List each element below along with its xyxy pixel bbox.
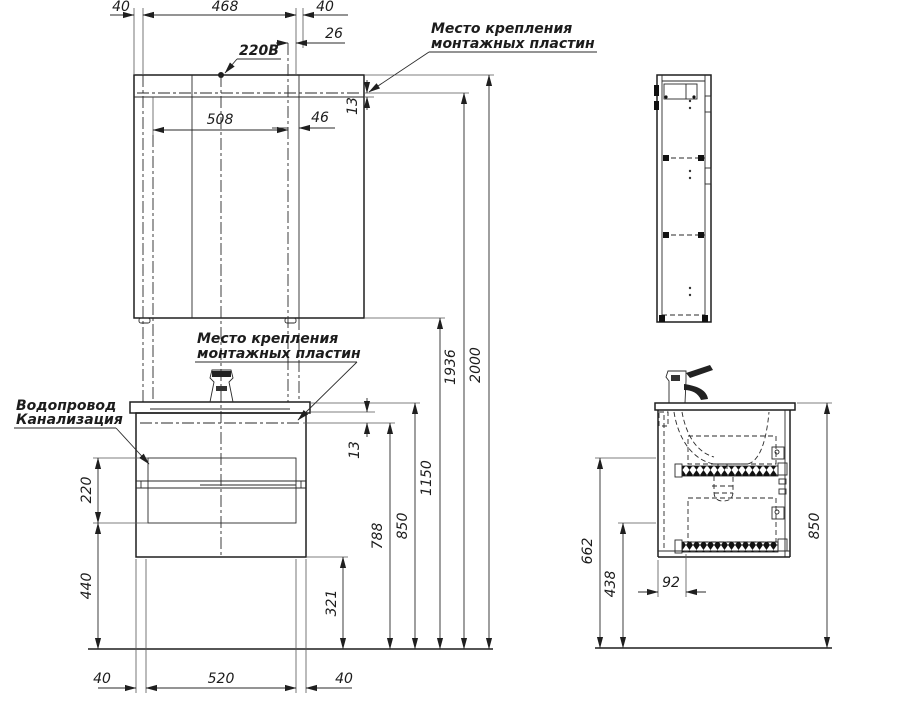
dim-850: 850 xyxy=(395,513,411,540)
mounting-mid-label-line1: Место крепления xyxy=(197,331,338,347)
callout-plumbing: Водопровод Канализация xyxy=(14,398,149,464)
dim-hatch-220: 220 xyxy=(79,477,95,504)
hinge-top xyxy=(654,85,659,96)
dim-788: 788 xyxy=(370,523,386,550)
dim-1150: 1150 xyxy=(419,460,435,496)
mirror-cabinet-front xyxy=(134,72,364,323)
dims-side: 662 438 850 92 xyxy=(580,403,832,648)
mounting-mid-label-line2: монтажных пластин xyxy=(197,346,361,362)
dim-mirror-plate-13: 13 xyxy=(345,97,361,115)
technical-drawing-page: 40 468 40 26 508 46 13 220 440 40 xyxy=(0,0,900,703)
dim-plate-side-46: 46 xyxy=(311,110,329,126)
dim-2000: 2000 xyxy=(468,347,484,383)
drawer-slide-upper xyxy=(682,466,778,476)
dim-1936: 1936 xyxy=(443,349,459,385)
dim-side-92: 92 xyxy=(662,575,680,591)
callout-mounting-top: Место крепления монтажных пластин xyxy=(369,21,597,92)
dim-top-left-40: 40 xyxy=(112,0,130,15)
voltage-label: 220В xyxy=(239,43,279,59)
dim-top-right-40: 40 xyxy=(316,0,334,15)
faucet-side xyxy=(666,365,713,403)
dims-top: 40 468 40 26 508 46 13 xyxy=(110,0,374,130)
mounting-top-label-line2: монтажных пластин xyxy=(431,36,595,52)
dim-side-438: 438 xyxy=(603,571,619,598)
dim-hatch-bottom-440: 440 xyxy=(79,573,95,600)
hinge-detail xyxy=(654,101,659,110)
installation-drawing: 40 468 40 26 508 46 13 220 440 40 xyxy=(0,0,900,703)
dims-bottom: 40 520 40 xyxy=(93,559,353,693)
dims-left: 220 440 xyxy=(79,458,148,649)
vanity-side xyxy=(655,365,795,557)
dim-side-662: 662 xyxy=(580,538,596,565)
mirror-cabinet-side xyxy=(654,75,711,322)
dim-vanity-plate-13: 13 xyxy=(347,441,363,459)
mounting-top-label-line1: Место крепления xyxy=(431,21,572,37)
dim-side-850: 850 xyxy=(807,513,823,540)
dim-bottom-right-40: 40 xyxy=(335,671,353,687)
dim-top-468: 468 xyxy=(212,0,239,15)
callout-voltage: 220В xyxy=(225,43,281,73)
mounting-lines-front xyxy=(134,8,303,557)
dim-plate-span-508: 508 xyxy=(207,112,234,128)
dim-bottom-520: 520 xyxy=(208,671,235,687)
faucet-front xyxy=(210,370,233,402)
drawer-slide-lower xyxy=(682,542,778,552)
dim-bottom-left-40: 40 xyxy=(93,671,111,687)
dim-plate-26: 26 xyxy=(325,26,343,42)
dim-321: 321 xyxy=(324,590,340,617)
vanity-front xyxy=(130,370,310,557)
plumbing-zone-hatch xyxy=(148,458,296,523)
plumbing-label-line2: Канализация xyxy=(16,412,123,428)
countertop-front xyxy=(130,402,310,413)
